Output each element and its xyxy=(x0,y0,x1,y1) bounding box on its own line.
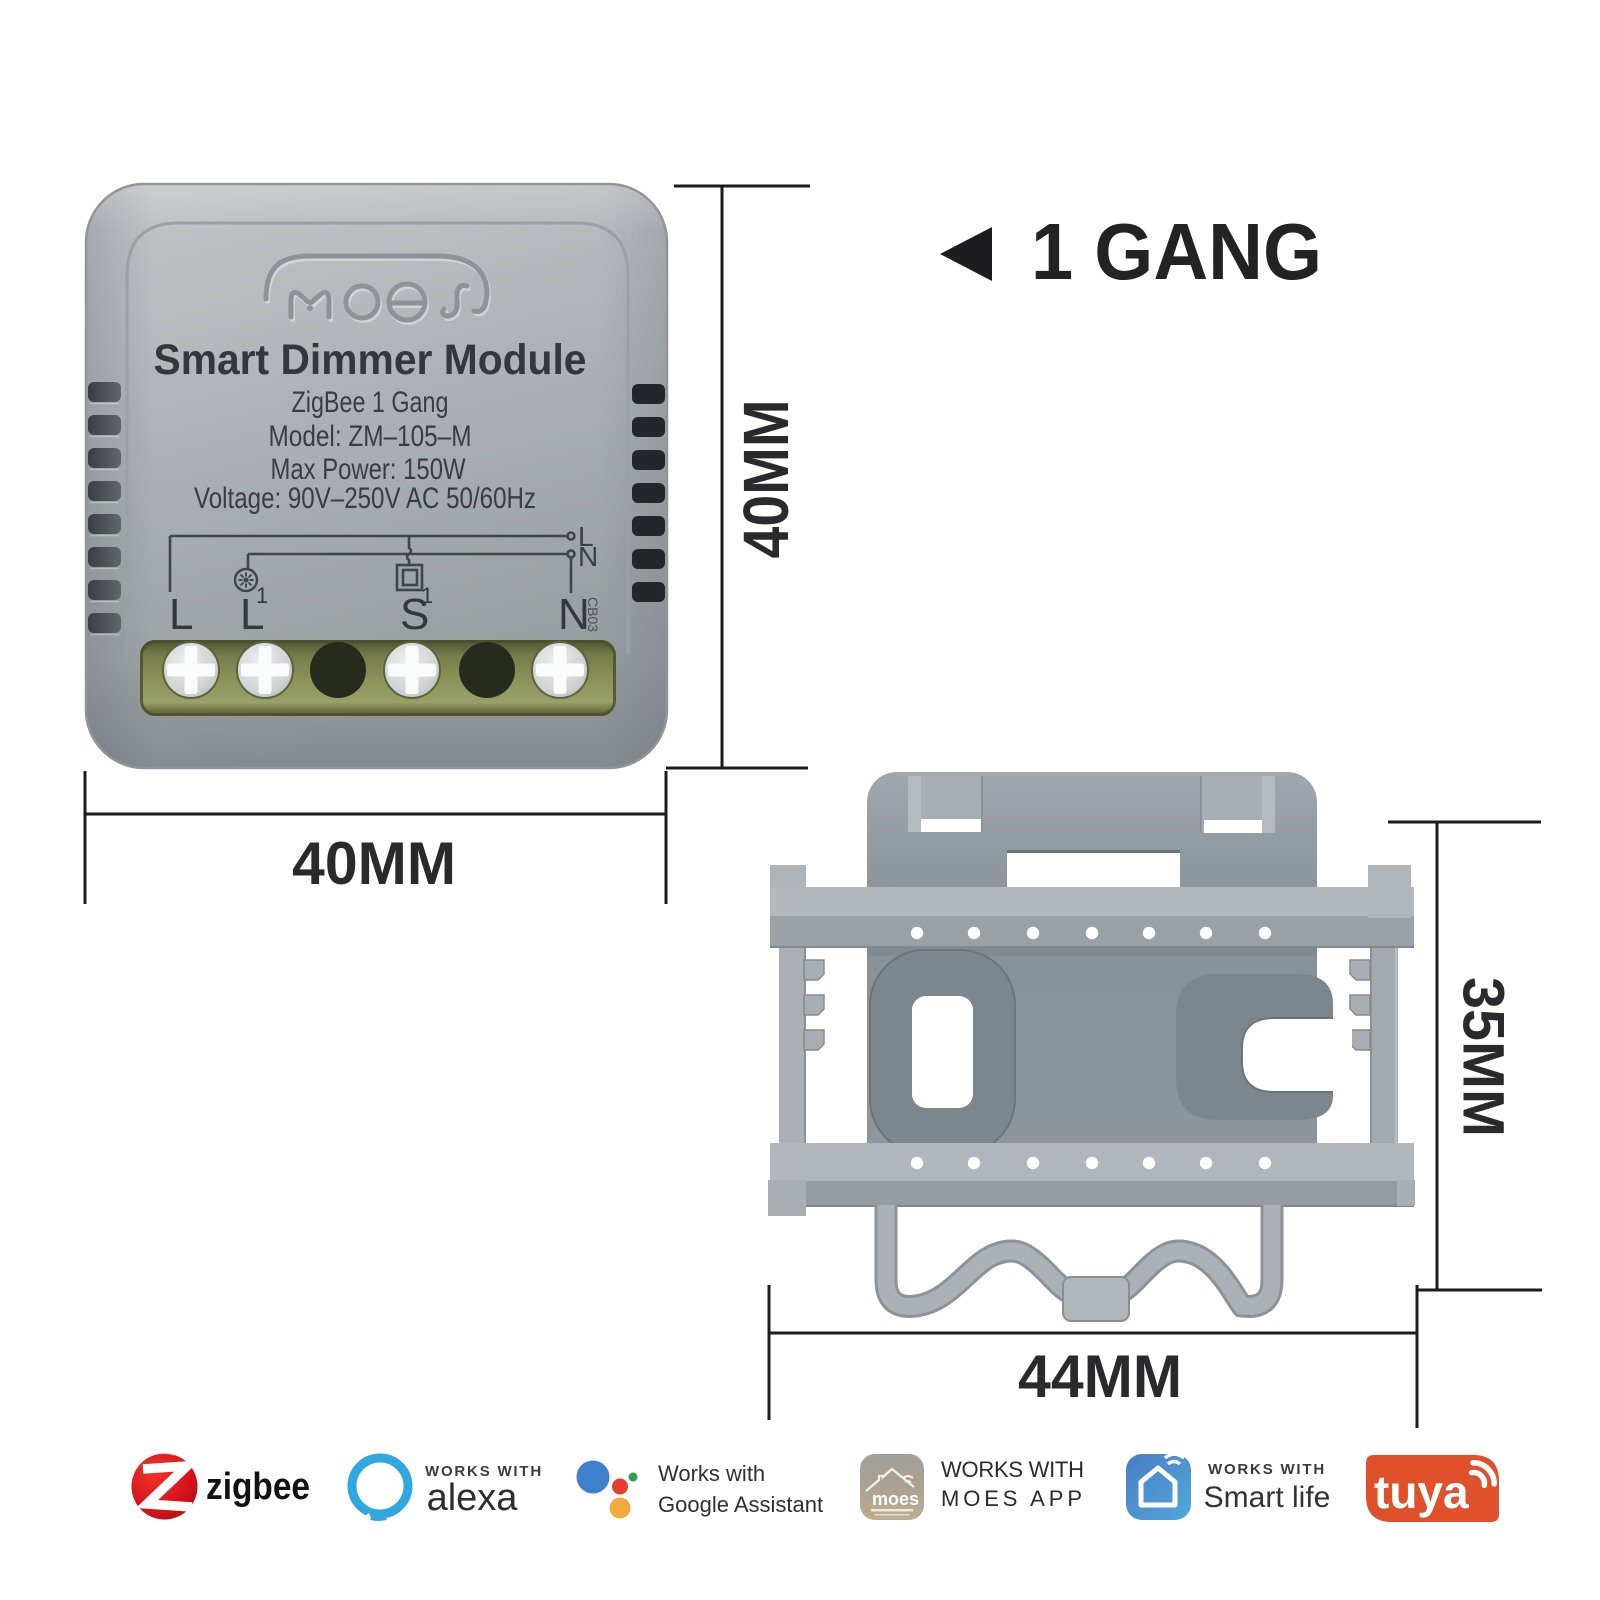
svg-text:moes: moes xyxy=(872,1489,919,1509)
svg-text:CB03: CB03 xyxy=(585,597,601,632)
svg-text:1 GANG: 1 GANG xyxy=(1031,207,1322,296)
svg-text:Smart Dimmer Module: Smart Dimmer Module xyxy=(154,336,587,384)
svg-text:40MM: 40MM xyxy=(292,830,456,897)
svg-text:alexa: alexa xyxy=(427,1477,519,1519)
svg-text:Google Assistant: Google Assistant xyxy=(658,1492,823,1517)
svg-text:N: N xyxy=(578,541,598,572)
svg-text:ZigBee 1 Gang: ZigBee 1 Gang xyxy=(292,386,449,419)
svg-text:WORKS WITH: WORKS WITH xyxy=(1208,1461,1326,1478)
svg-text:1: 1 xyxy=(256,583,268,608)
svg-text:Voltage: 90V–250V AC 50/60Hz: Voltage: 90V–250V AC 50/60Hz xyxy=(194,482,536,515)
svg-text:L: L xyxy=(169,590,193,639)
svg-text:tuya: tuya xyxy=(1374,1466,1469,1518)
svg-text:Model: ZM–105–M: Model: ZM–105–M xyxy=(269,420,472,453)
svg-text:35MM: 35MM xyxy=(1451,977,1516,1137)
svg-text:WORKS WITH: WORKS WITH xyxy=(941,1457,1084,1482)
svg-text:40MM: 40MM xyxy=(730,400,802,559)
svg-text:Smart life: Smart life xyxy=(1204,1481,1331,1514)
svg-text:Works with: Works with xyxy=(658,1461,765,1486)
svg-text:zigbee: zigbee xyxy=(206,1466,310,1508)
svg-text:44MM: 44MM xyxy=(1018,1343,1182,1410)
svg-text:1: 1 xyxy=(421,583,433,608)
